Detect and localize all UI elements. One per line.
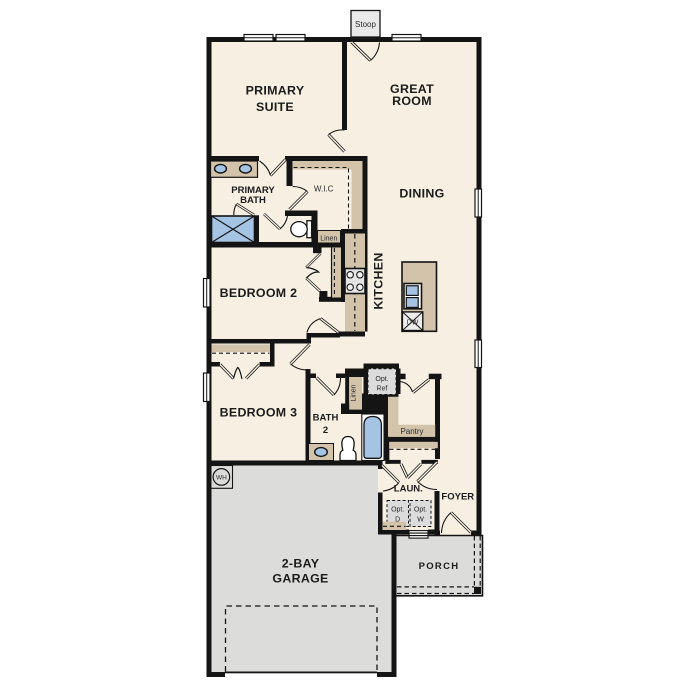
svg-text:Opt.: Opt.: [391, 507, 404, 514]
svg-text:Pantry: Pantry: [400, 427, 423, 436]
svg-text:2: 2: [323, 425, 328, 436]
svg-text:Linen: Linen: [351, 384, 358, 401]
svg-text:BATH: BATH: [240, 195, 266, 206]
svg-text:BEDROOM 2: BEDROOM 2: [220, 286, 298, 300]
svg-text:WH: WH: [216, 474, 227, 481]
svg-text:BEDROOM 3: BEDROOM 3: [220, 406, 298, 420]
svg-text:DW: DW: [407, 319, 419, 326]
svg-text:GARAGE: GARAGE: [272, 572, 328, 586]
svg-text:PORCH: PORCH: [419, 561, 460, 572]
svg-text:W.I.C: W.I.C: [314, 184, 334, 193]
svg-text:Opt.: Opt.: [414, 507, 427, 514]
svg-text:DINING: DINING: [399, 187, 444, 201]
svg-text:Stoop: Stoop: [355, 20, 376, 29]
svg-text:FOYER: FOYER: [441, 492, 474, 503]
svg-text:2-BAY: 2-BAY: [282, 557, 320, 571]
svg-text:LAUN.: LAUN.: [394, 483, 423, 494]
svg-text:Ref: Ref: [377, 386, 388, 393]
svg-text:KITCHEN: KITCHEN: [372, 252, 386, 309]
svg-text:BATH: BATH: [313, 413, 339, 424]
svg-text:ROOM: ROOM: [392, 94, 432, 108]
svg-text:SUITE: SUITE: [256, 100, 294, 114]
svg-text:W: W: [417, 516, 424, 523]
svg-text:Linen: Linen: [320, 235, 337, 242]
svg-text:Opt.: Opt.: [375, 376, 388, 383]
svg-text:PRIMARY: PRIMARY: [246, 84, 305, 98]
svg-text:PRIMARY: PRIMARY: [231, 185, 275, 196]
